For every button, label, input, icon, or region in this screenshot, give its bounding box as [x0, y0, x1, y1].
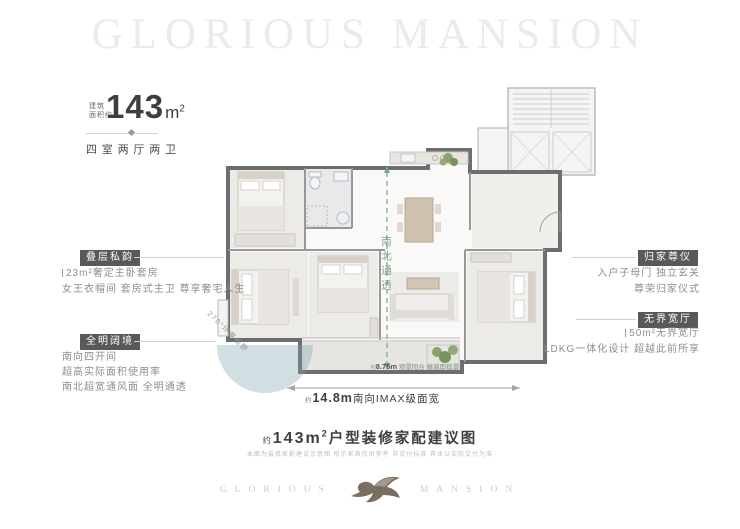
annotation-left-1-title: 叠层私韵	[80, 250, 140, 266]
connector-line	[134, 341, 216, 342]
brand-left: GLORIOUS	[220, 485, 332, 495]
sofa	[389, 272, 459, 322]
width-dim-value: 14.8m	[312, 391, 352, 405]
area-unit: m2	[165, 103, 185, 123]
connector-line	[572, 257, 636, 258]
tick-mark	[625, 329, 626, 337]
annotation-right-2-line1: 50m²无界宽厅	[625, 328, 700, 340]
tick-mark	[62, 269, 63, 277]
divider-line	[86, 133, 158, 134]
annotation-left-2-line2: 超高实际面积使用率	[62, 367, 161, 379]
annotation-left-2-line3: 南北超宽通风面 全明通透	[62, 382, 187, 394]
annotation-left-1-line1: 23m²奢定主卧套房	[62, 268, 159, 280]
caption-title: 约143m2户型装修家配建议图	[0, 427, 740, 448]
swallow-icon	[348, 474, 404, 506]
footer-brand: GLORIOUS MANSION	[0, 474, 740, 506]
stair-core	[478, 88, 595, 175]
view-fan	[217, 345, 313, 393]
brand-right: MANSION	[420, 485, 520, 495]
annotation-left-1-line2: 女王衣帽间 套房式主卫 尊享奢宅人生	[62, 284, 246, 296]
diamond-icon	[128, 129, 135, 136]
annotation-right-2-line2: LDKG一体化设计 超越此前所享	[544, 344, 700, 356]
balcony-dim-value: 8.75m	[376, 362, 397, 371]
annotation-right-2-title: 无界宽厅	[638, 312, 698, 328]
caption-area-exp: 2	[322, 429, 329, 439]
balcony-dim-text: 观景阳台 推窗即揽景	[399, 364, 459, 371]
annotation-left-2-line1: 南向四开间	[62, 352, 117, 364]
watermark-title: GLORIOUS MANSION	[0, 10, 740, 59]
area-value: 143	[106, 90, 164, 123]
area-headline: 143 m2	[106, 90, 185, 123]
connector-line	[134, 257, 224, 258]
annotation-left-2-title: 全明阔境	[80, 334, 140, 350]
caption-prefix: 约	[263, 436, 273, 445]
caption-text: 户型装修家配建议图	[329, 431, 478, 447]
north-south-label: 南北通透	[379, 236, 394, 294]
balcony-dimension-label: 约8.75m 观景阳台 推窗即揽景	[330, 361, 500, 371]
caption-area: 143m	[273, 430, 322, 447]
disclaimer-text: 本图为装修家配建议示意图 所示家具仅供参考 非交付标准 具体以实际交付为准	[0, 449, 740, 458]
floorplan-poster: GLORIOUS MANSION 建筑 面积约 143 m2 四室两厅两卫	[0, 0, 740, 529]
annotation-right-1-line1: 入户子母门 独立玄关	[597, 268, 700, 280]
width-dim-text: 南向IMAX级面宽	[353, 393, 440, 405]
annotation-right-1-title: 归家尊仪	[638, 250, 698, 266]
annotation-right-1-line2: 尊荣归家仪式	[634, 284, 700, 296]
layout-label: 四室两厅两卫	[86, 141, 181, 157]
connector-line	[576, 319, 636, 320]
width-dimension-label: 约14.8m南向IMAX级面宽	[280, 391, 465, 406]
